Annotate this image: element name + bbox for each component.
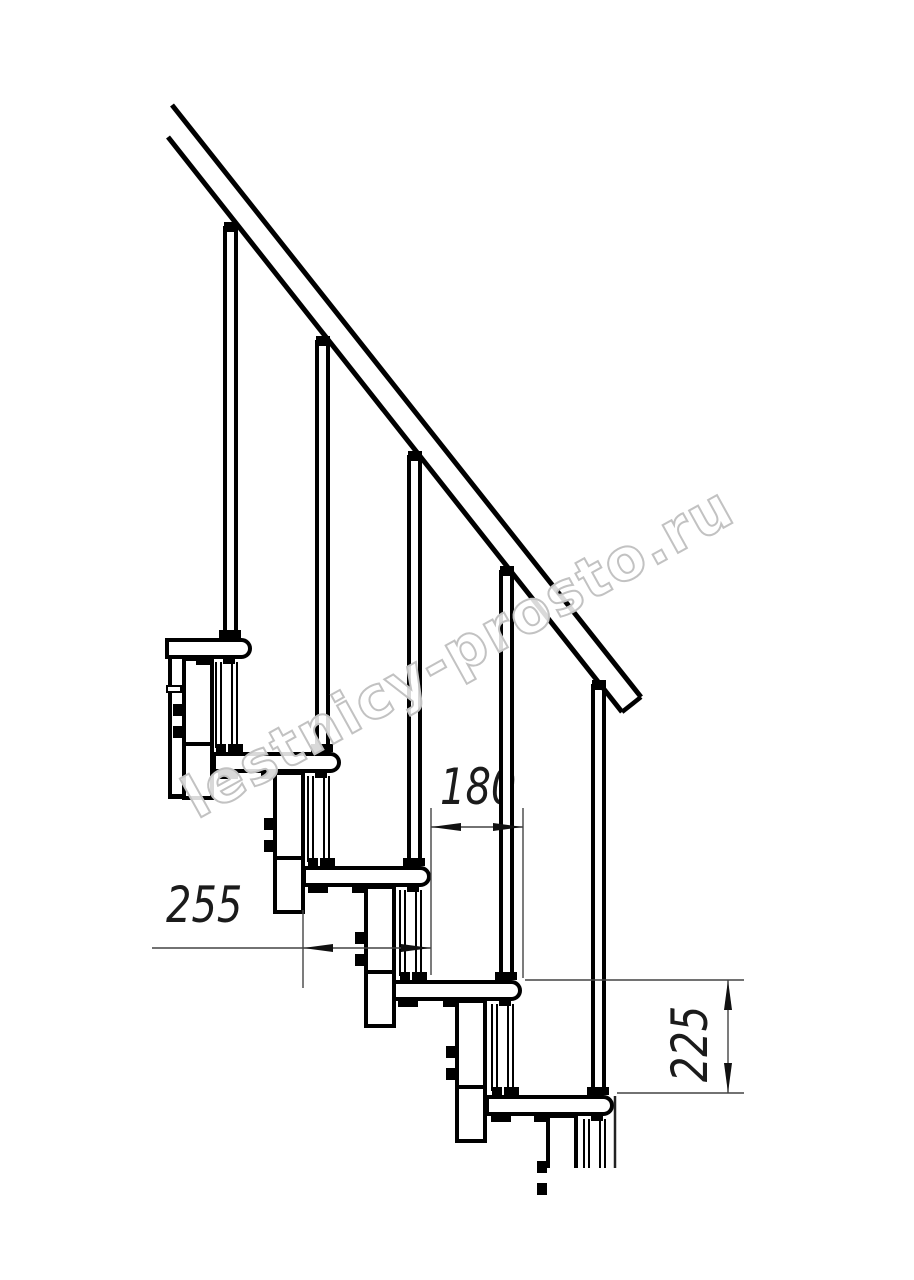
arrow-255-left [303, 944, 333, 952]
arrow-225-up [724, 980, 732, 1010]
arrow-180-right [493, 823, 523, 831]
dimension-arrows [303, 823, 732, 1093]
staircase-technical-drawing: 255 180 225 lestnicy-prosto.ru [0, 0, 914, 1280]
arrow-255-right [401, 944, 431, 952]
arrow-225-down [724, 1063, 732, 1093]
arrow-180-left [431, 823, 461, 831]
handrail-end-cut [622, 697, 641, 712]
dimension-lines [152, 808, 744, 1093]
